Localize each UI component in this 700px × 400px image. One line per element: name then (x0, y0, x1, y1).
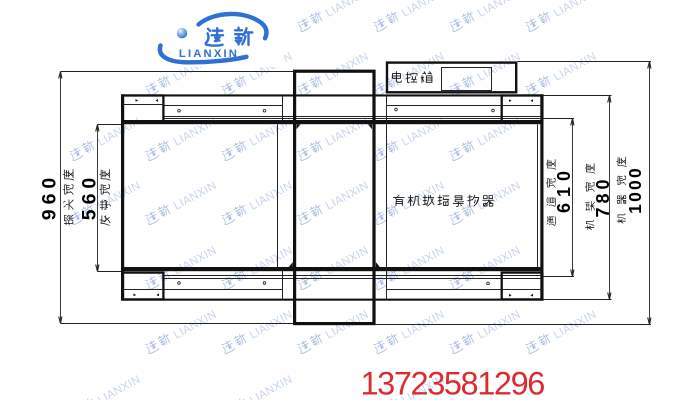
svg-text:560: 560 (79, 173, 101, 221)
svg-text:13723581296: 13723581296 (361, 366, 545, 400)
svg-text:1000: 1000 (625, 166, 645, 214)
svg-text:960: 960 (39, 173, 61, 221)
svg-text:780: 780 (593, 175, 613, 217)
svg-text:LIANXIN: LIANXIN (179, 48, 239, 60)
svg-text:610: 610 (554, 165, 574, 213)
